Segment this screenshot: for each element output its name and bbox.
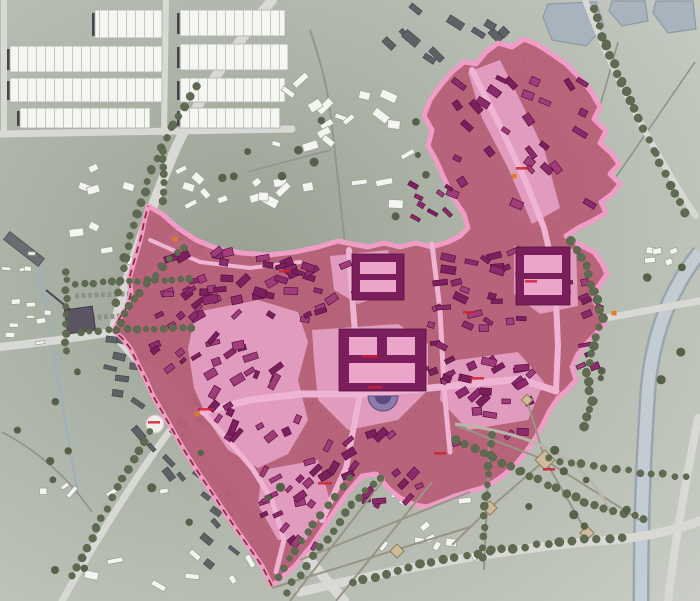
tree [422, 171, 430, 179]
building [39, 488, 46, 494]
tree [581, 499, 589, 507]
tree [471, 444, 480, 453]
tree [186, 275, 193, 282]
tree [591, 343, 599, 351]
tree [610, 59, 619, 68]
tree [602, 41, 611, 50]
tree [125, 243, 132, 250]
tree [640, 515, 647, 522]
tree [159, 148, 166, 155]
tree [349, 579, 356, 586]
tree [482, 493, 490, 501]
tree [479, 545, 485, 551]
tree [74, 368, 81, 375]
tree [144, 178, 150, 184]
site-label-mark [318, 482, 332, 485]
tree [278, 172, 287, 181]
tree [193, 82, 201, 90]
tree [174, 249, 180, 255]
tree [303, 562, 311, 570]
building [652, 247, 662, 254]
building [106, 336, 118, 343]
courtyard [387, 337, 415, 355]
tree [61, 339, 68, 346]
tree [166, 255, 172, 261]
tree [340, 483, 347, 490]
tree [586, 359, 593, 366]
tree [90, 280, 97, 287]
tree [347, 475, 353, 481]
building [644, 257, 655, 263]
tree [498, 545, 506, 553]
tree [318, 117, 325, 124]
tree [452, 435, 461, 444]
tree [587, 350, 594, 357]
tree [159, 197, 167, 205]
tree [72, 281, 78, 287]
tree [158, 263, 165, 270]
tree [534, 475, 542, 483]
tree [121, 310, 128, 317]
tree [683, 474, 689, 480]
tree [584, 270, 592, 278]
building [263, 261, 274, 268]
tree [63, 303, 69, 309]
tree [62, 321, 68, 327]
tree [371, 573, 380, 582]
tree [577, 460, 585, 468]
tree [309, 552, 317, 560]
tree [655, 159, 663, 167]
tree [480, 450, 487, 457]
tree [62, 269, 69, 276]
tree [143, 326, 149, 332]
tree [97, 515, 104, 522]
tree [681, 209, 690, 218]
tree [622, 87, 631, 96]
tree [394, 567, 402, 575]
tree [630, 104, 638, 112]
tree [117, 319, 125, 327]
tree [127, 232, 134, 239]
tree [488, 431, 495, 438]
tree [265, 495, 272, 502]
tree [648, 471, 654, 477]
tree [643, 273, 652, 282]
site-label-mark [434, 452, 446, 455]
tree [550, 446, 559, 455]
tree [109, 494, 116, 501]
tree [590, 5, 598, 13]
building [28, 252, 35, 255]
tree [64, 277, 70, 283]
tree [63, 348, 70, 355]
tree [637, 470, 644, 477]
tree [480, 512, 487, 519]
tree [125, 302, 133, 310]
tree [593, 295, 602, 304]
tree [450, 554, 458, 562]
courtyard-complex [339, 329, 426, 391]
building [372, 498, 386, 504]
tree [113, 327, 120, 334]
tree [65, 447, 72, 454]
tree [124, 325, 131, 332]
tree [86, 328, 92, 334]
tree [147, 428, 153, 434]
tree [598, 375, 604, 381]
tree [662, 170, 670, 178]
tree [324, 536, 332, 544]
tree [582, 369, 590, 377]
tree [135, 447, 143, 455]
building [9, 323, 18, 328]
tree [140, 438, 148, 446]
building [26, 302, 35, 307]
tree [596, 23, 603, 30]
tree [439, 555, 448, 564]
site-label-mark [525, 280, 537, 283]
tree [186, 92, 194, 100]
tree [415, 152, 421, 158]
tree [64, 295, 71, 302]
tree [112, 299, 120, 307]
tree [50, 476, 57, 483]
tree [370, 481, 377, 488]
tree [198, 450, 204, 456]
road [164, 0, 166, 133]
tree [613, 70, 621, 78]
tree [218, 174, 226, 182]
tree [583, 477, 590, 484]
tree [481, 524, 488, 531]
tree [159, 155, 166, 162]
tree [485, 471, 491, 477]
tree [484, 462, 492, 470]
tree [63, 312, 69, 318]
shed-grid [95, 10, 162, 38]
tree [69, 572, 76, 579]
tree [586, 406, 593, 413]
tree [480, 533, 487, 540]
courtyard-complex [516, 247, 570, 305]
tree [589, 287, 597, 295]
courtyard [360, 280, 396, 292]
tree [646, 137, 653, 144]
tree [533, 541, 540, 548]
tree [595, 305, 603, 313]
tree [62, 287, 69, 294]
building [458, 497, 471, 504]
tree [405, 564, 413, 572]
courtyard [524, 255, 562, 273]
building [479, 325, 488, 332]
tree [587, 281, 594, 288]
tree [657, 375, 666, 384]
tree [130, 222, 137, 229]
tree [95, 328, 102, 335]
gate-marker [612, 311, 617, 316]
tree [412, 118, 420, 126]
building [266, 292, 275, 299]
tree [130, 455, 138, 463]
building [1, 267, 10, 271]
tree [544, 482, 551, 489]
site-label-mark [279, 270, 291, 273]
tree [573, 246, 581, 254]
road [0, 129, 292, 134]
tree [461, 440, 469, 448]
tree [377, 475, 384, 482]
map-viewport [0, 0, 700, 601]
tree [487, 451, 495, 459]
building [517, 428, 529, 435]
building [302, 182, 314, 192]
tree [581, 522, 588, 529]
tree [585, 387, 593, 395]
tree [555, 538, 564, 547]
tree [180, 325, 186, 331]
tree [590, 462, 597, 469]
building [232, 340, 245, 350]
tree [100, 279, 106, 285]
tree [106, 327, 112, 333]
tree [281, 565, 288, 572]
building [5, 332, 15, 337]
tree [522, 544, 529, 551]
tree [325, 502, 332, 509]
tree [639, 125, 647, 133]
tree [488, 440, 495, 447]
tree [592, 334, 600, 342]
tree [526, 473, 533, 480]
site-label-mark [463, 311, 475, 314]
tree [525, 503, 532, 510]
building [24, 266, 31, 271]
courtyard [360, 262, 396, 274]
tree [583, 262, 590, 269]
tree [81, 565, 88, 572]
tree [618, 534, 626, 542]
building [163, 292, 174, 297]
tree [584, 377, 593, 386]
building [480, 388, 492, 396]
tree [162, 278, 168, 284]
tree [563, 490, 571, 498]
tree [606, 535, 615, 544]
tree [596, 324, 603, 331]
tree [652, 150, 659, 157]
tree [577, 253, 585, 261]
tree [678, 264, 686, 272]
tree [582, 413, 591, 422]
shed-grid [180, 44, 288, 70]
building [515, 364, 530, 371]
tree [297, 572, 304, 579]
tree [331, 493, 339, 501]
building [11, 299, 20, 305]
tree [78, 554, 86, 562]
tree [330, 528, 337, 535]
tree [464, 552, 471, 559]
tree [160, 325, 167, 332]
tree [178, 276, 184, 282]
tree [126, 278, 132, 284]
tree [147, 165, 155, 173]
courtyard [349, 363, 415, 383]
tree [83, 544, 91, 552]
tree [188, 324, 195, 331]
tree [73, 564, 81, 572]
tree [116, 279, 122, 285]
tree [160, 164, 167, 171]
tree [160, 189, 167, 196]
tree [181, 244, 188, 251]
tree [134, 279, 140, 285]
tree [598, 367, 606, 375]
tree [317, 544, 324, 551]
tree [92, 525, 100, 533]
tree [275, 574, 282, 581]
tree [62, 330, 70, 338]
tree [599, 313, 606, 320]
tree [557, 458, 564, 465]
tree [355, 494, 362, 501]
tree [552, 484, 560, 492]
building [491, 299, 502, 304]
tree [104, 506, 111, 513]
shed-grid [180, 10, 285, 36]
tree [78, 329, 85, 336]
tree [545, 540, 552, 547]
building [472, 407, 482, 415]
tree [122, 254, 130, 262]
tree [569, 510, 578, 519]
building [115, 375, 129, 382]
tree [498, 459, 506, 467]
tree [676, 198, 683, 205]
tree [147, 483, 156, 492]
tree [336, 518, 344, 526]
tree [672, 474, 678, 480]
building [387, 120, 401, 130]
tree [632, 512, 639, 519]
tree [600, 505, 608, 513]
tree [276, 483, 285, 492]
map-canvas [0, 0, 700, 601]
tree [623, 506, 631, 514]
tree [609, 507, 617, 515]
courtyard [349, 337, 377, 355]
tree [568, 537, 576, 545]
tree [153, 272, 159, 278]
shed-grid [20, 108, 150, 128]
tree [605, 51, 613, 59]
tree [175, 113, 182, 120]
tree [143, 280, 150, 287]
tree [600, 465, 607, 472]
building [388, 199, 403, 208]
tree [362, 487, 368, 493]
gate-marker [512, 174, 517, 179]
building [433, 279, 448, 286]
tree [382, 570, 390, 578]
tree [133, 326, 141, 334]
shed-grid [10, 78, 162, 102]
building [516, 316, 526, 321]
tree [14, 427, 21, 434]
building [112, 389, 123, 397]
courtyard-complex [352, 254, 404, 300]
tree [593, 14, 601, 22]
tree [161, 179, 168, 186]
building [44, 310, 51, 316]
building [284, 287, 298, 294]
tree [546, 455, 553, 462]
building [27, 315, 35, 318]
tree [612, 466, 619, 473]
site-label-mark [470, 377, 484, 380]
tree [580, 422, 589, 431]
site-label-mark [516, 167, 530, 170]
building [221, 275, 233, 282]
tree [516, 468, 523, 475]
building [36, 318, 46, 325]
site-label-mark [543, 468, 555, 471]
tree [186, 519, 193, 526]
tree [244, 148, 251, 155]
tree [310, 158, 319, 167]
tree [317, 512, 324, 519]
masterplan-map [0, 0, 700, 601]
shed-grid [180, 108, 280, 128]
tree [341, 509, 349, 517]
tree [560, 467, 568, 475]
tree [169, 121, 177, 129]
tree [82, 280, 89, 287]
tree [508, 544, 517, 553]
site-label-mark [198, 408, 214, 411]
tree [151, 326, 157, 332]
building [219, 258, 228, 266]
tree [164, 134, 171, 141]
building [502, 399, 511, 404]
tree [348, 503, 354, 509]
tree [676, 348, 685, 357]
tree [292, 547, 299, 554]
building [185, 573, 199, 580]
site-label-mark [362, 355, 378, 358]
tree [588, 397, 597, 406]
tree [358, 575, 367, 584]
tree [169, 324, 176, 331]
tree [566, 236, 575, 245]
tree [169, 277, 175, 283]
tree [115, 289, 122, 296]
tree [568, 460, 575, 467]
tree [666, 182, 674, 190]
building [436, 305, 451, 310]
tree [671, 190, 679, 198]
tree [114, 483, 121, 490]
building [258, 192, 268, 201]
tree [141, 188, 150, 197]
site-label-mark [368, 386, 382, 389]
tree [580, 535, 588, 543]
tree [392, 212, 400, 220]
tree [89, 534, 97, 542]
tree [309, 521, 317, 529]
